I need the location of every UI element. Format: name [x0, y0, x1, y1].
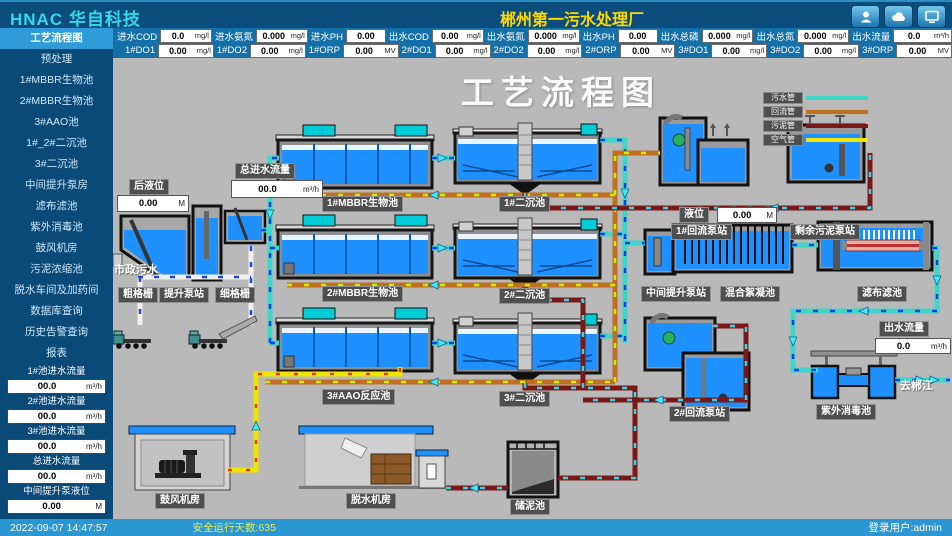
label-fine-screen: 细格栅	[215, 287, 255, 303]
metric-value: 0.00	[433, 31, 467, 41]
label-to-river: 去郴江	[900, 377, 933, 393]
legend-label: 污水管	[763, 92, 803, 104]
label-sludge-tank: 储泥池	[510, 499, 550, 515]
metric-unit: mg/l	[842, 46, 858, 55]
sidebar-item-clarifier3[interactable]: 3#二沉池	[0, 154, 113, 175]
field-value: 00.0	[8, 441, 86, 452]
label-excess-sludge-station: 剩余污泥泵站	[790, 224, 860, 240]
legend-label: 污泥管	[763, 120, 803, 132]
field-value: 00.0	[8, 471, 86, 482]
sidebar-item-reports[interactable]: 报表	[0, 343, 113, 364]
metric-label: 2#ORP	[585, 45, 616, 56]
metric-value: 0.00	[347, 31, 385, 41]
metric-value: 0.000	[257, 31, 291, 41]
metric-value: 0.00	[897, 46, 938, 56]
metric-value-box: 0.0mg/l	[160, 29, 212, 43]
label-uv-tank: 紫外消毒池	[816, 404, 876, 420]
total-inflow-value: 00.0	[232, 184, 303, 195]
label-mid-lift-station: 中间提升泵站	[641, 286, 711, 302]
mbbr1-tank[interactable]	[276, 125, 434, 188]
metric-value-box: 0.00mg/l	[803, 44, 859, 58]
metric-value-box: 0.00mg/l	[711, 44, 767, 58]
cloud-button[interactable]	[884, 5, 913, 28]
sidebar-field: 1#池进水流量00.0m³/h	[0, 366, 113, 394]
metric-unit: mg/l	[197, 46, 213, 55]
sidebar-field: 2#池进水流量00.0m³/h	[0, 396, 113, 424]
label-clarifier1: 1#二沉池	[499, 196, 550, 212]
label-blower-room: 鼓风机房	[155, 493, 205, 509]
field-label: 1#池进水流量	[0, 366, 113, 378]
logged-in-user: 登录用户:admin	[868, 520, 942, 535]
label-dewater-room: 脱水机房	[346, 493, 396, 509]
metric-value: 0.00	[621, 46, 662, 56]
uv-tank[interactable]	[811, 351, 897, 398]
metric-value: 0.00	[436, 46, 474, 56]
diagram-title: 工艺流程图	[461, 66, 661, 114]
metrics-band: 进水COD0.0mg/l 进水氨氮0.000mg/l 进水PH0.00 出水CO…	[113, 28, 952, 58]
label-mixing-tank: 混合絮凝池	[720, 286, 780, 302]
metric-label: 出水流量	[852, 29, 890, 43]
metric-value: 0.000	[798, 31, 832, 41]
metric-label: 3#DO1	[678, 45, 708, 56]
rear-level-value-box: 0.00M	[117, 195, 189, 212]
air-pipe-swatch	[806, 138, 868, 142]
sidebar-field: 3#池进水流量00.0m³/h	[0, 426, 113, 454]
metric-label: 1#DO2	[217, 45, 247, 56]
field-unit: m³/h	[86, 472, 105, 481]
metric-value: 0.00	[528, 46, 566, 56]
total-inflow-label: 总进水流量	[235, 163, 295, 179]
metric-value-box: 0.00mg/l	[435, 44, 491, 58]
metric-unit: mg/l	[473, 46, 489, 55]
clarifier2-tank[interactable]	[453, 218, 602, 290]
field-label: 3#池进水流量	[0, 426, 113, 438]
label-clarifier3: 3#二沉池	[499, 391, 550, 407]
field-label: 中间提升泵液位	[0, 486, 113, 498]
clarifier1-tank[interactable]	[453, 123, 602, 195]
sidebar: 工艺流程图 预处理 1#MBBR生物池 2#MBBR生物池 3#AAO池 1#_…	[0, 28, 113, 519]
metric-label: 出水氨氮	[487, 29, 525, 43]
metric-unit: MV	[938, 46, 951, 55]
metric-label: 3#DO2	[770, 45, 800, 56]
metric-unit: mg/l	[750, 46, 766, 55]
field-value-box: 00.0m³/h	[7, 469, 106, 484]
outflow-unit: m³/h	[931, 342, 950, 351]
metric-value-box: 0.000mg/l	[528, 29, 580, 43]
metric-value-box: 0.00	[346, 29, 386, 43]
blower-room-building[interactable]	[129, 426, 235, 490]
legend-label: 回流管	[763, 106, 803, 118]
metric-value: 0.000	[703, 31, 737, 41]
metric-unit: mg/l	[291, 31, 307, 40]
metric-value: 0.0	[894, 31, 934, 41]
label-municipal-sewage: 市政污水	[114, 261, 158, 277]
metric-label: 出水总磷	[661, 29, 699, 43]
company-logo: HNAC 华自科技	[10, 5, 141, 30]
datetime-display: 2022-09-07 14:47:57	[10, 522, 108, 534]
user-icon	[858, 9, 874, 25]
sidebar-item-dewater[interactable]: 脱水车间及加药间	[0, 280, 113, 301]
metric-unit: mg/l	[832, 31, 848, 40]
level-value-box: 0.00M	[717, 207, 777, 223]
sidebar-item-clarifier12[interactable]: 1#_2#二沉池	[0, 133, 113, 154]
status-bar: 2022-09-07 14:47:57 安全运行天数:635 登录用户:admi…	[0, 519, 952, 536]
process-flow-diagram: 工艺流程图 污水管 回流管 污泥管 空气管 粗格栅 提升泵站 细格栅 市政污水 …	[113, 58, 952, 519]
return-station2-tank[interactable]	[645, 315, 749, 410]
safe-running-days: 安全运行天数:635	[193, 520, 276, 535]
pipe-legend: 污水管 回流管 污泥管 空气管	[763, 92, 868, 148]
metric-label: 2#DO1	[402, 45, 432, 56]
aao3-tank[interactable]	[276, 308, 434, 371]
level-unit: M	[766, 211, 776, 220]
header-bar: HNAC 华自科技 郴州第一污水处理厂	[0, 0, 952, 28]
legend-label: 空气管	[763, 134, 803, 146]
label-clarifier2: 2#二沉池	[499, 288, 550, 304]
metrics-row-2: 1#DO10.00mg/l 1#DO20.00mg/l 1#ORP0.00MV …	[113, 43, 952, 58]
field-unit: m³/h	[86, 442, 105, 451]
field-value: 0.00	[8, 501, 95, 512]
dewater-room-building[interactable]	[299, 426, 448, 489]
clarifier3-tank[interactable]	[453, 313, 602, 385]
rear-level-value: 0.00	[118, 198, 178, 209]
header-buttons	[851, 5, 946, 28]
sidebar-item-mid-lift[interactable]: 中间提升泵房	[0, 175, 113, 196]
metric-value-box: 0.000mg/l	[702, 29, 754, 43]
plant-title: 郴州第一污水处理厂	[500, 6, 644, 30]
label-aao3: 3#AAO反应池	[322, 389, 395, 405]
metric-unit: mg/l	[467, 31, 483, 40]
field-value-box: 00.0m³/h	[7, 409, 106, 424]
label-mbbr2: 2#MBBR生物池	[322, 286, 403, 302]
field-unit: m³/h	[86, 412, 105, 421]
metric-unit: m³/h	[934, 31, 951, 40]
field-unit: m³/h	[86, 382, 105, 391]
metric-value: 0.00	[712, 46, 750, 56]
metrics-row-1: 进水COD0.0mg/l 进水氨氮0.000mg/l 进水PH0.00 出水CO…	[113, 28, 952, 43]
field-unit: M	[95, 502, 105, 511]
field-value-box: 00.0m³/h	[7, 379, 106, 394]
sidebar-item-cloth-filter[interactable]: 滤布滤池	[0, 196, 113, 217]
metric-value-box: 0.00mg/l	[527, 44, 583, 58]
sidebar-field: 中间提升泵液位0.00M	[0, 486, 113, 514]
metric-value-box: 0.00mg/l	[250, 44, 306, 58]
metric-value: 0.0	[161, 31, 195, 41]
metric-unit: MV	[661, 46, 674, 55]
field-value-box: 00.0m³/h	[7, 439, 106, 454]
total-inflow-unit: m³/h	[303, 185, 322, 194]
outflow-value-box: 0.0m³/h	[875, 338, 951, 354]
metric-unit: mg/l	[562, 31, 578, 40]
return-station1-tank[interactable]	[660, 116, 748, 185]
metric-value-box: 0.00MV	[896, 44, 952, 58]
sidebar-item-sludge-thickener[interactable]: 污泥浓缩池	[0, 259, 113, 280]
metric-value: 0.000	[529, 31, 563, 41]
field-value: 00.0	[8, 411, 86, 422]
metric-label: 出水PH	[583, 29, 615, 43]
sidebar-item-pretreatment[interactable]: 预处理	[0, 49, 113, 70]
cloud-icon	[891, 9, 907, 25]
screenings-conveyor	[219, 316, 257, 339]
metric-label: 2#DO2	[494, 45, 524, 56]
outflow-label: 出水流量	[879, 321, 929, 337]
rear-level-unit: M	[178, 199, 188, 208]
metric-value: 0.00	[251, 46, 289, 56]
level-value: 0.00	[718, 210, 766, 221]
level-label: 液位	[679, 207, 709, 223]
sewage-pipe-swatch	[806, 96, 868, 100]
monitor-button[interactable]	[917, 5, 946, 28]
metric-value-box: 0.00MV	[343, 44, 399, 58]
metric-unit: MV	[384, 46, 397, 55]
metric-unit: mg/l	[289, 46, 305, 55]
label-lift-station: 提升泵站	[159, 287, 209, 303]
metric-value: 0.00	[619, 31, 657, 41]
sidebar-item-database[interactable]: 数据库查询	[0, 301, 113, 322]
label-cloth-filter: 滤布滤池	[857, 286, 907, 302]
user-button[interactable]	[851, 5, 880, 28]
metric-value: 0.00	[159, 46, 197, 56]
label-mbbr1: 1#MBBR生物池	[322, 196, 403, 212]
sidebar-item-blower[interactable]: 鼓风机房	[0, 238, 113, 259]
sidebar-item-mbbr1[interactable]: 1#MBBR生物池	[0, 70, 113, 91]
monitor-icon	[924, 9, 940, 25]
metric-value-box: 0.00	[618, 29, 658, 43]
metric-label: 3#ORP	[862, 45, 893, 56]
sidebar-item-alarm-history[interactable]: 历史告警查询	[0, 322, 113, 343]
metric-value-box: 0.000mg/l	[256, 29, 308, 43]
sidebar-item-process-flow[interactable]: 工艺流程图	[0, 28, 113, 49]
metric-label: 进水PH	[311, 29, 343, 43]
metric-value-box: 0.00mg/l	[432, 29, 484, 43]
field-label: 2#池进水流量	[0, 396, 113, 408]
return-pipe-swatch	[806, 110, 868, 114]
outflow-value: 0.0	[876, 341, 931, 352]
total-inflow-value-box: 00.0m³/h	[231, 180, 323, 198]
metric-label: 1#ORP	[309, 45, 340, 56]
sidebar-item-aao3[interactable]: 3#AAO池	[0, 112, 113, 133]
truck	[113, 331, 151, 349]
sidebar-item-uv[interactable]: 紫外消毒池	[0, 217, 113, 238]
metric-value-box: 0.0m³/h	[893, 29, 952, 43]
metric-value-box: 0.000mg/l	[797, 29, 849, 43]
metric-value-box: 0.00mg/l	[158, 44, 214, 58]
metric-label: 1#DO1	[125, 45, 155, 56]
rear-level-label: 后液位	[129, 179, 169, 195]
metric-label: 进水COD	[117, 29, 157, 43]
sludge-storage-tank[interactable]	[508, 442, 558, 497]
field-label: 总进水流量	[0, 456, 113, 468]
metric-unit: mg/l	[565, 46, 581, 55]
metric-unit: mg/l	[195, 31, 211, 40]
metric-value: 0.00	[804, 46, 842, 56]
metric-unit: mg/l	[736, 31, 752, 40]
sidebar-item-mbbr2[interactable]: 2#MBBR生物池	[0, 91, 113, 112]
metric-value-box: 0.00MV	[620, 44, 676, 58]
mbbr2-tank[interactable]	[276, 215, 434, 278]
label-return-station1: 1#回流泵站	[671, 224, 732, 240]
metric-label: 出水COD	[389, 29, 429, 43]
metric-value: 0.00	[344, 46, 385, 56]
sludge-pipe-swatch	[806, 124, 868, 128]
sidebar-field: 总进水流量00.0m³/h	[0, 456, 113, 484]
field-value-box: 0.00M	[7, 499, 106, 514]
metric-label: 出水总氮	[756, 29, 794, 43]
field-value: 00.0	[8, 381, 86, 392]
metric-label: 进水氨氮	[215, 29, 253, 43]
label-return-station2: 2#回流泵站	[669, 406, 730, 422]
label-coarse-screen: 粗格栅	[118, 287, 158, 303]
